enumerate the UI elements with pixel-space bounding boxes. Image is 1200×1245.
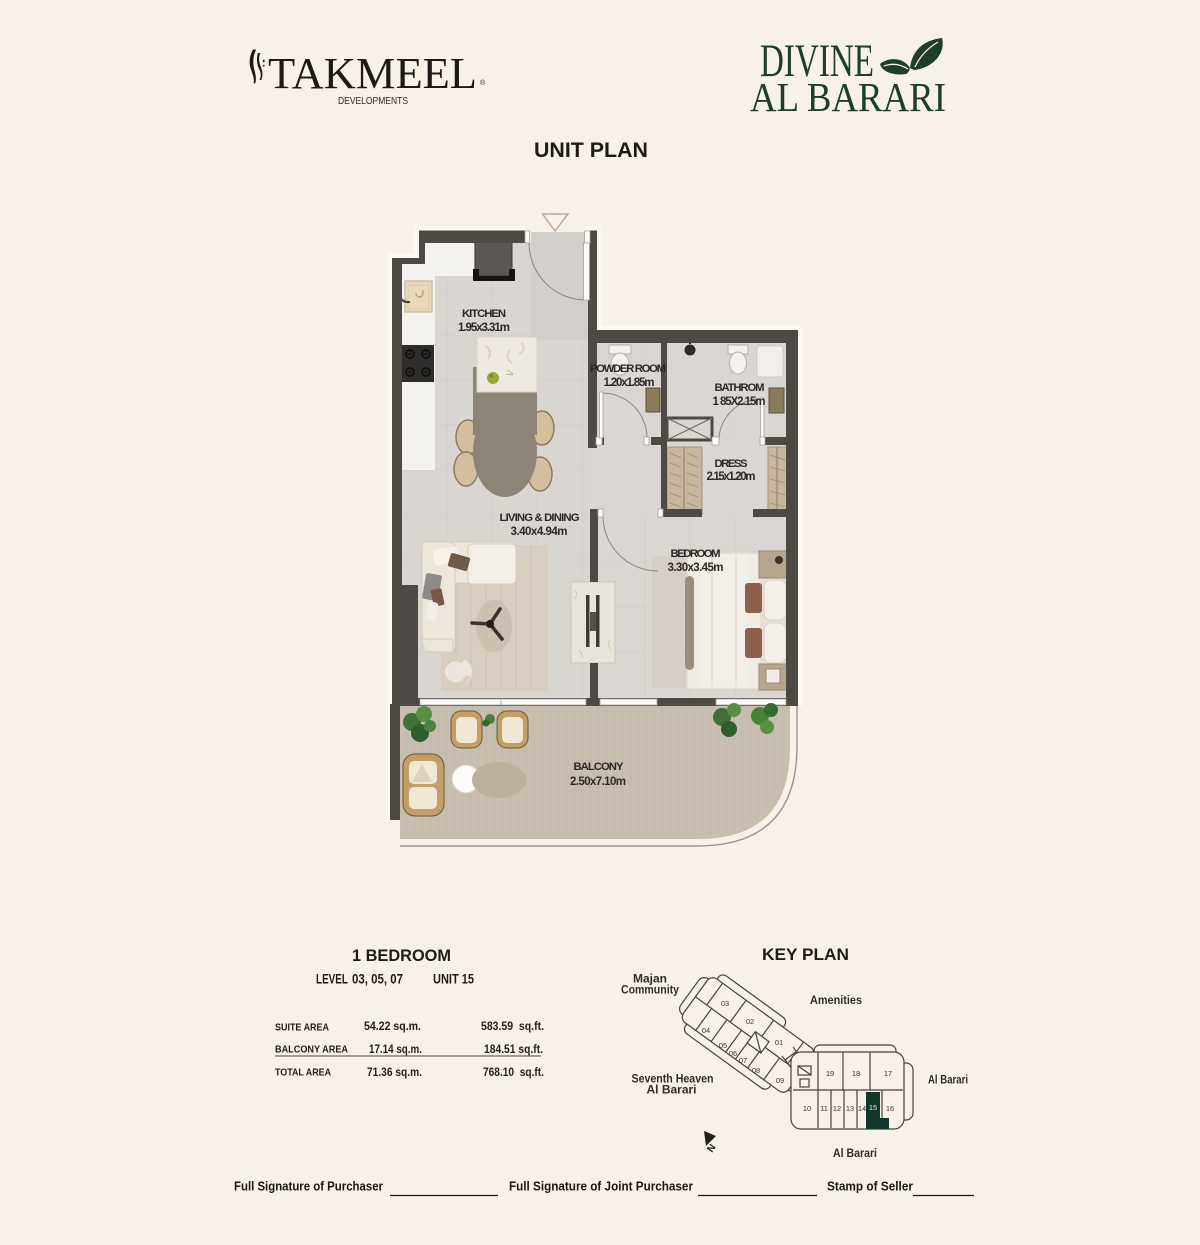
svg-text:1 BEDROOM: 1 BEDROOM <box>352 946 451 965</box>
svg-text:AL BARARI: AL BARARI <box>750 74 946 120</box>
svg-text:SUITE AREA: SUITE AREA <box>275 1023 329 1034</box>
svg-text:KITCHEN: KITCHEN <box>462 308 506 320</box>
svg-text:UNIT PLAN: UNIT PLAN <box>534 138 648 162</box>
svg-text:BALCONY AREA: BALCONY AREA <box>275 1045 348 1056</box>
svg-text:2.15x1.20m: 2.15x1.20m <box>707 471 756 483</box>
svg-text:Full Signature of Purchaser: Full Signature of Purchaser <box>234 1180 383 1194</box>
svg-text:LEVEL: LEVEL <box>316 971 348 987</box>
svg-text:Al Barari: Al Barari <box>833 1146 877 1160</box>
svg-text:03, 05, 07: 03, 05, 07 <box>352 971 403 987</box>
svg-text:®: ® <box>480 79 486 87</box>
svg-text:BEDROOM: BEDROOM <box>671 548 721 560</box>
svg-text:BATHROM: BATHROM <box>715 382 765 394</box>
svg-text:TAKMEEL: TAKMEEL <box>268 49 477 98</box>
svg-text:583.59 sq.ft.: 583.59 sq.ft. <box>481 1021 544 1033</box>
svg-text:DEVELOPMENTS: DEVELOPMENTS <box>338 96 408 107</box>
svg-text:POWDER ROOM: POWDER ROOM <box>590 363 666 375</box>
svg-text:TOTAL AREA: TOTAL AREA <box>275 1068 331 1079</box>
svg-text:71.36 sq.m.: 71.36 sq.m. <box>367 1067 422 1079</box>
svg-text:1.95x3.31m: 1.95x3.31m <box>458 322 510 334</box>
svg-text:2.50x7.10m: 2.50x7.10m <box>570 776 626 788</box>
svg-text:768.10 sq.ft.: 768.10 sq.ft. <box>483 1067 544 1079</box>
svg-text:1.20x1.85m: 1.20x1.85m <box>604 377 655 389</box>
svg-text:UNIT 15: UNIT 15 <box>433 971 474 987</box>
svg-text:Al Barari: Al Barari <box>928 1073 968 1087</box>
svg-text:Stamp of Seller: Stamp of Seller <box>827 1180 913 1194</box>
svg-text:LIVING & DINING: LIVING & DINING <box>500 512 580 524</box>
svg-text:3.30x3.45m: 3.30x3.45m <box>668 562 724 574</box>
svg-text:Al Barari: Al Barari <box>647 1083 697 1097</box>
svg-text:BALCONY: BALCONY <box>574 761 624 773</box>
svg-text:3.40x4.94m: 3.40x4.94m <box>511 526 568 538</box>
svg-text:Full Signature of Joint Purcha: Full Signature of Joint Purchaser <box>509 1180 693 1194</box>
svg-text:1 85X2.15m: 1 85X2.15m <box>713 396 766 408</box>
svg-text:184.51 sq.ft.: 184.51 sq.ft. <box>484 1044 543 1056</box>
svg-text:Community: Community <box>621 983 679 997</box>
svg-text:Amenities: Amenities <box>810 993 862 1007</box>
svg-text:DRESS: DRESS <box>715 458 748 470</box>
svg-text:17.14 sq.m.: 17.14 sq.m. <box>369 1044 422 1056</box>
svg-text:54.22 sq.m.: 54.22 sq.m. <box>364 1021 421 1033</box>
